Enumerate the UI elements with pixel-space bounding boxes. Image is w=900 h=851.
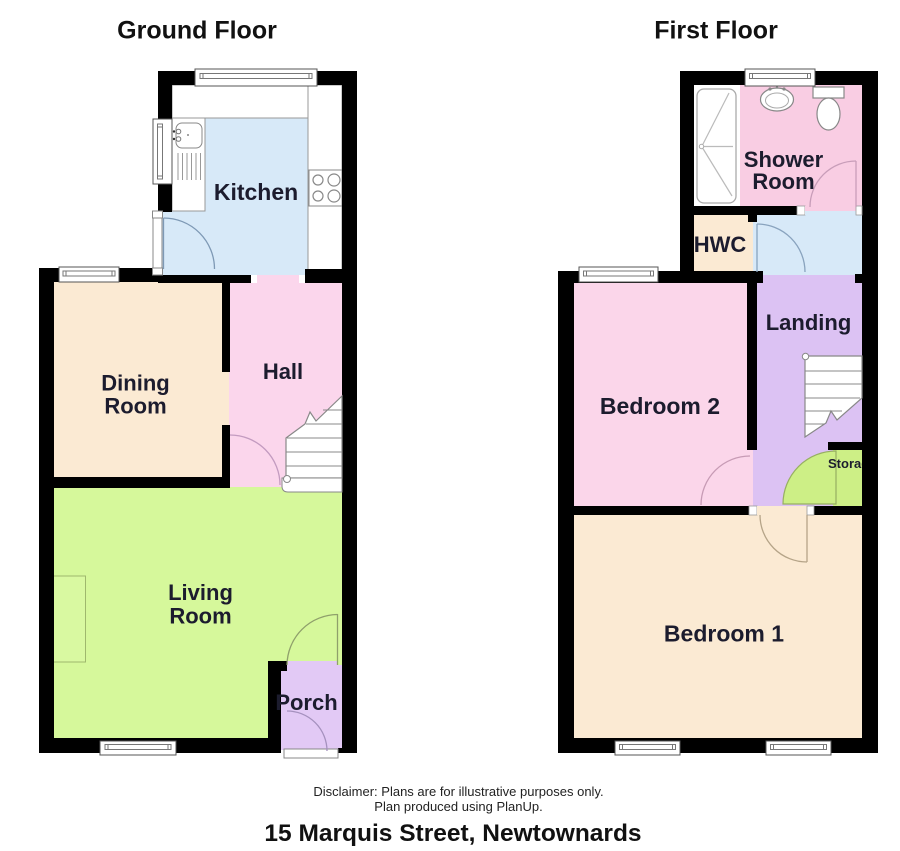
svg-text:HWC: HWC [694, 232, 747, 257]
svg-text:Room: Room [752, 169, 814, 194]
svg-text:Room: Room [104, 394, 166, 419]
svg-text:Ground Floor: Ground Floor [117, 17, 277, 45]
svg-text:15 Marquis Street, Newtownards: 15 Marquis Street, Newtownards [264, 820, 641, 846]
svg-text:Landing: Landing [766, 310, 852, 335]
svg-text:First Floor: First Floor [654, 17, 778, 45]
svg-text:Plan produced using PlanUp.: Plan produced using PlanUp. [374, 799, 542, 814]
svg-text:Porch: Porch [275, 690, 337, 715]
svg-text:Disclaimer: Plans are for illu: Disclaimer: Plans are for illustrative p… [313, 784, 603, 799]
svg-text:Dining: Dining [101, 371, 169, 396]
svg-text:Bedroom 2: Bedroom 2 [600, 393, 720, 419]
svg-text:Hall: Hall [263, 359, 303, 384]
svg-text:Kitchen: Kitchen [214, 179, 298, 205]
svg-text:Living: Living [168, 580, 233, 605]
svg-text:Room: Room [169, 604, 231, 629]
svg-text:Bedroom 1: Bedroom 1 [664, 621, 784, 647]
